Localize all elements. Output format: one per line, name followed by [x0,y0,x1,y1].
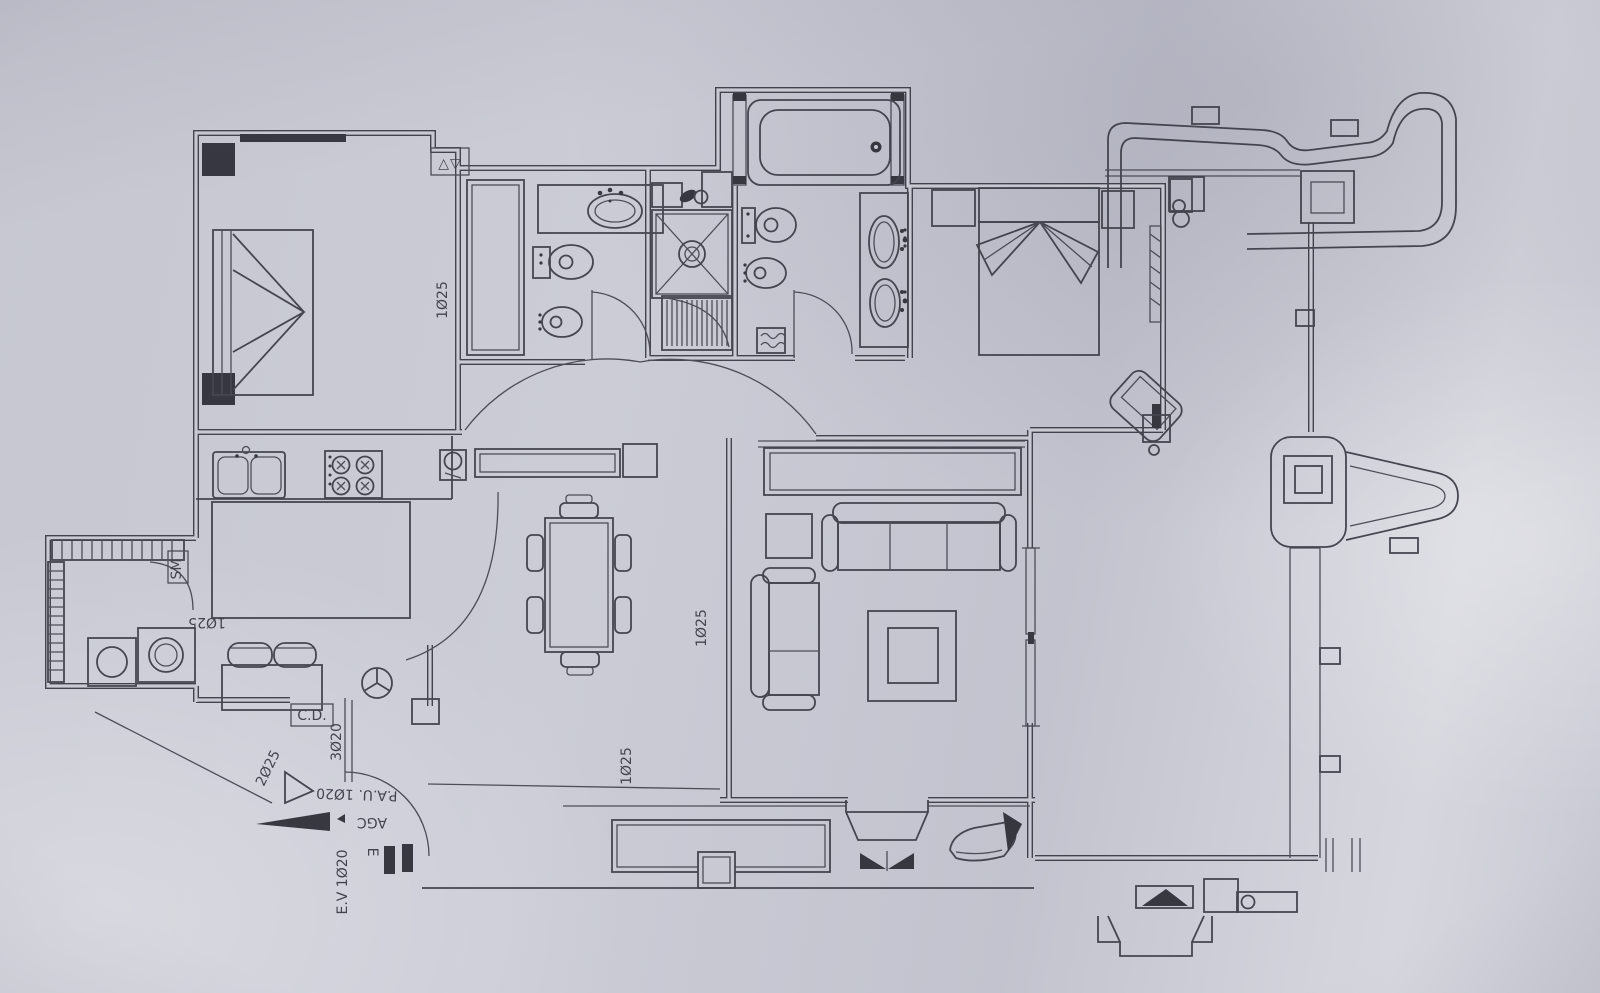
double-vanity [860,193,908,347]
pipe-label-f: 3Ø20 [329,723,345,761]
dining-area [475,444,657,675]
kitchen-island [212,502,410,618]
railing-post [1331,120,1358,136]
direction-triangle [285,772,313,803]
bathroom-1 [467,180,663,360]
toilet-1 [533,245,593,279]
kitchen-door-arc [406,492,498,660]
balcony-column-2 [1301,171,1354,223]
arrow-marker [337,814,345,823]
planter [612,820,830,888]
window-hatch [1150,226,1161,428]
shower-tray [652,210,732,298]
coffee-table [868,611,956,701]
utility-room: SM [48,540,195,686]
bedroom-2 [903,179,1192,445]
bidet-1 [538,307,582,337]
photographed-floor-plan: △▽ [0,0,1600,993]
side-table [766,514,812,558]
terrace-steps [846,800,928,840]
threshold-bar [384,846,395,874]
bowtie-marker [860,851,914,871]
pau-label: P.A.U. 1Ø20 [316,785,398,804]
bathroom-2-door [794,290,852,358]
hall-double-doors [465,359,816,434]
nightstand [932,190,975,226]
sliding-window [1022,548,1040,726]
boat-object [950,812,1022,861]
washing-machine [138,628,195,682]
terrace-bottom [422,800,1034,888]
walls [48,90,1340,858]
wall-pillar [202,373,235,405]
vanity-sink-1 [538,185,663,233]
bed-2 [977,188,1099,355]
sofa-small [751,568,819,710]
pipe-label-a: 1Ø25 [435,281,451,319]
dining-table [545,518,613,652]
e-label: E [364,848,380,857]
vent-symbol: △▽ [438,156,462,172]
stove [325,451,382,498]
shower-room [652,172,732,350]
bathtub [733,93,904,185]
cd-label: C.D. [297,708,326,724]
entry-cabinet [412,699,439,724]
sideboard [764,448,1021,495]
pipe-label-c: 1Ø25 [694,609,710,647]
bed-1 [213,230,313,395]
window-band [240,134,346,142]
bidet-2 [743,258,786,288]
kitchen [196,436,498,724]
floor-plan-drawing: △▽ [0,0,1600,993]
water-heater [440,450,466,480]
living-room [751,441,1040,726]
ev-label: E.V 1Ø20 [335,849,351,914]
toilet-2 [742,208,796,243]
kitchen-sink [213,447,285,499]
bedroom-1: △▽ [202,134,469,405]
pipe-label-b: 1Ø25 [188,614,226,630]
bathroom-1-door [592,290,650,360]
threshold-bar [402,844,413,872]
door-pivot-symbol [362,668,392,698]
agc-label: AGC [357,814,387,830]
dining-chairs [527,495,631,675]
shower-louver [662,296,732,350]
nightstand [1102,191,1134,228]
washing-machine-2 [88,638,136,686]
direction-wedge [256,812,330,831]
armchair [1106,367,1186,445]
wardrobe [467,180,524,355]
sm-label: SM [169,559,185,580]
wall-duct [1170,179,1192,212]
towel-radiator [757,328,785,353]
pipe-label-e: 2Ø25 [253,748,284,789]
pipe-label-d: 1Ø25 [619,747,635,785]
balcony-right [1271,437,1458,553]
step-structure [1098,916,1212,956]
bathroom-2 [742,193,908,358]
wall-pillar [202,143,235,176]
entry-door-arc [345,772,429,856]
railing-post [1192,107,1219,124]
sideboard-window [475,444,657,477]
sofa-large [822,503,1016,571]
